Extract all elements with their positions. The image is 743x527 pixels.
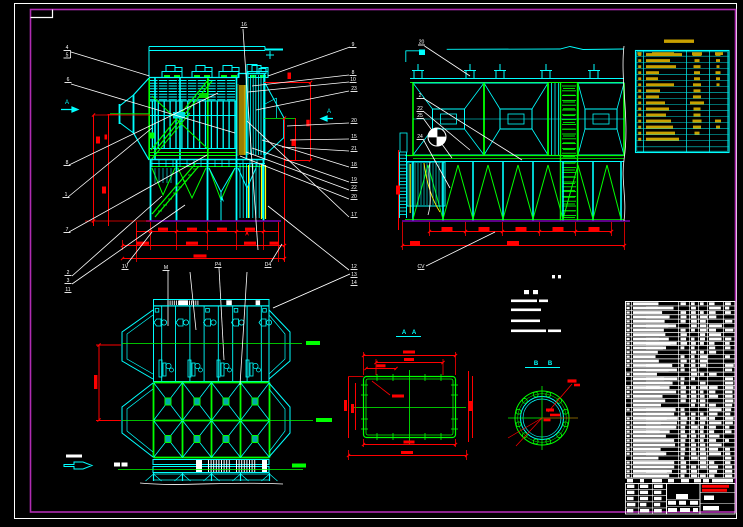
svg-text:B: B <box>534 361 539 367</box>
svg-text:A: A <box>327 109 331 115</box>
svg-text:A: A <box>402 330 407 336</box>
svg-text:A: A <box>65 100 69 106</box>
svg-text:B: B <box>548 361 553 367</box>
svg-text:A: A <box>412 330 417 336</box>
